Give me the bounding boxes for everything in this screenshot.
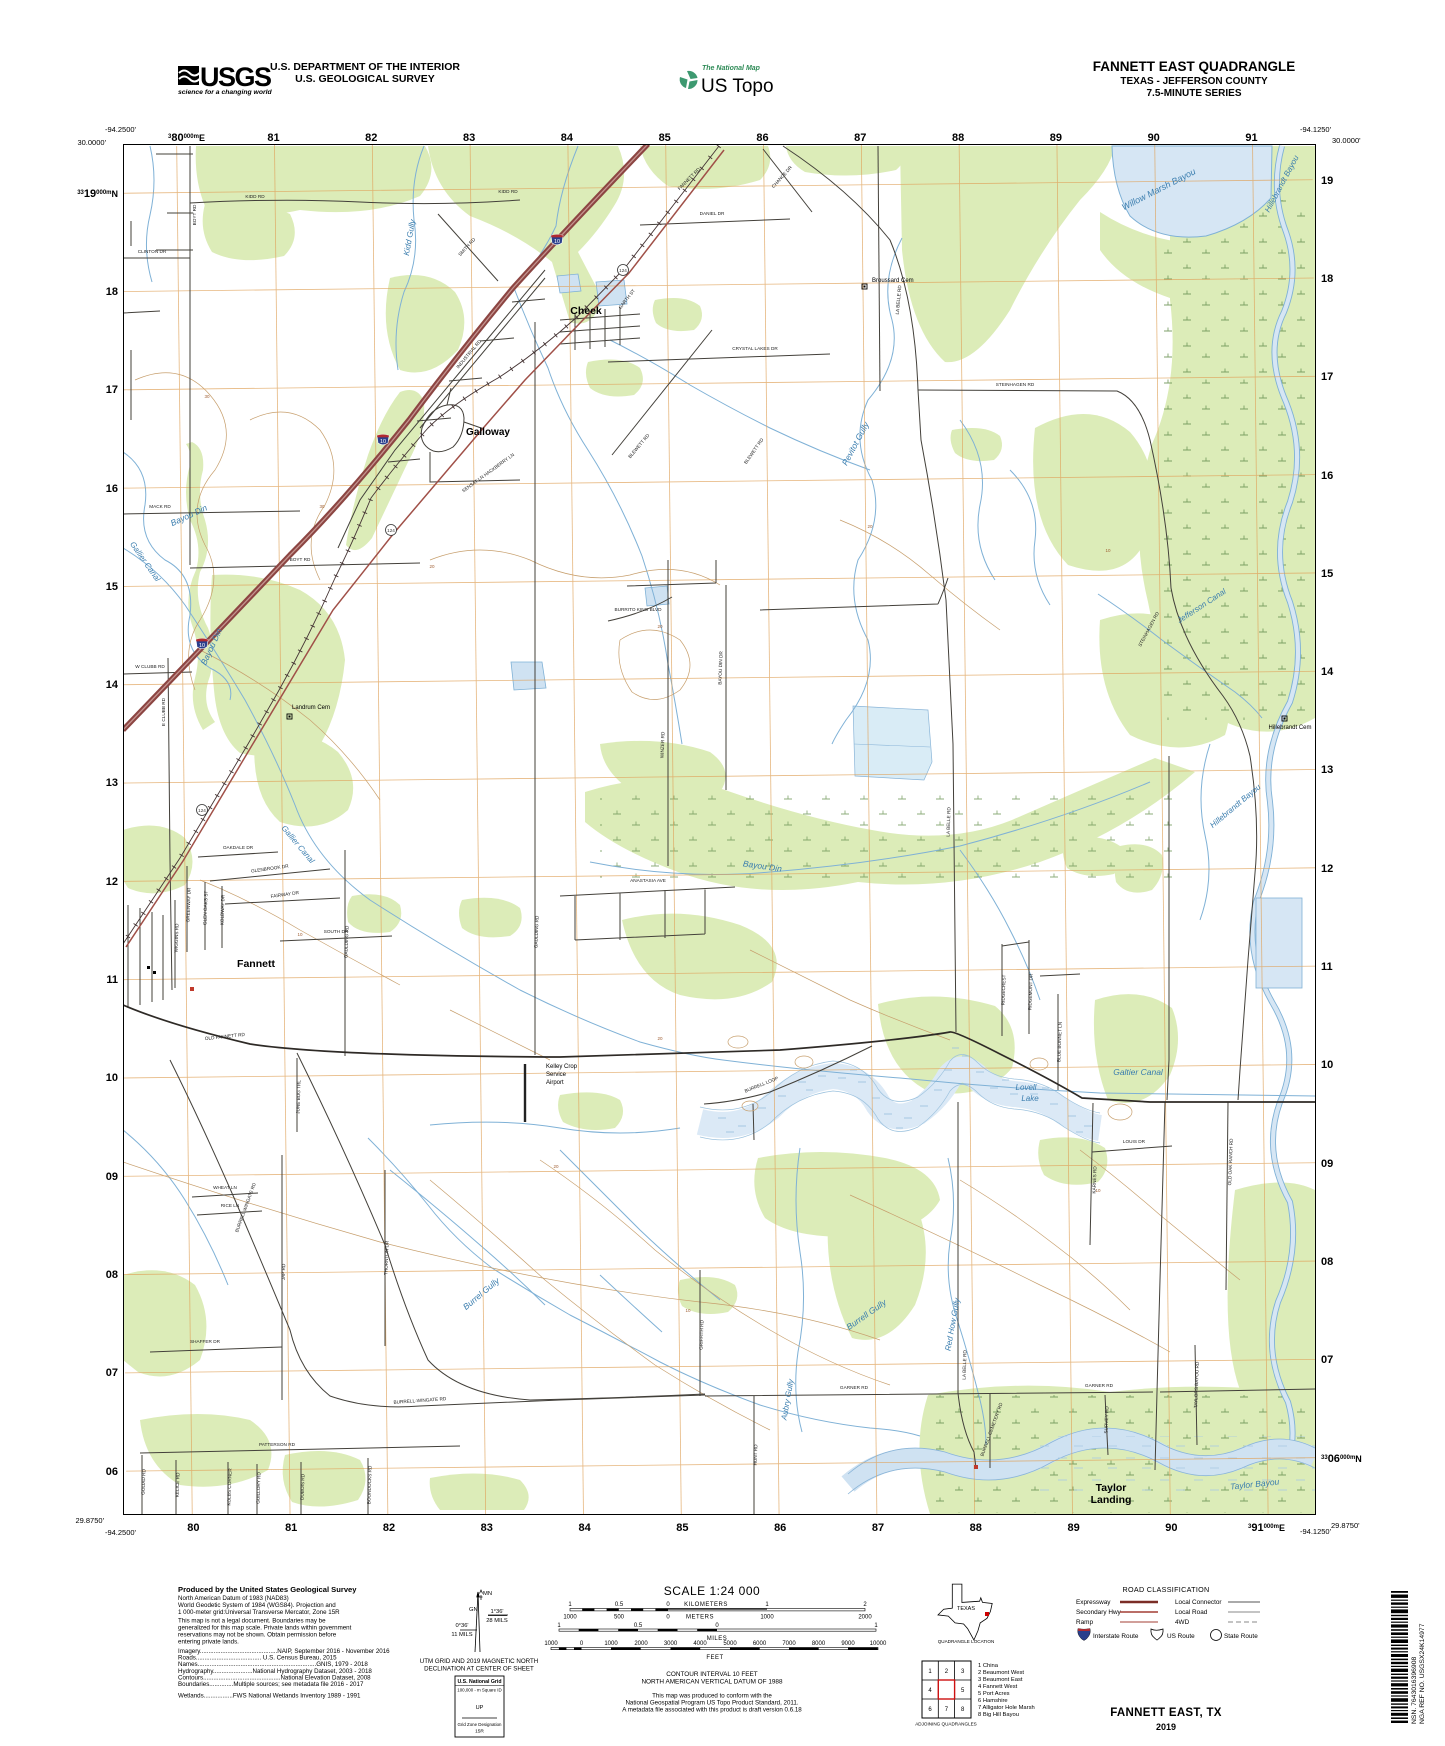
svg-text:-94.2500': -94.2500' xyxy=(105,125,137,134)
svg-text:KELICE RD: KELICE RD xyxy=(175,1472,181,1498)
svg-text:Fannett: Fannett xyxy=(237,958,275,970)
svg-text:1000: 1000 xyxy=(604,1641,618,1647)
svg-text:4000: 4000 xyxy=(693,1641,707,1647)
svg-text:BURRITO KING BLVD: BURRITO KING BLVD xyxy=(615,607,663,612)
svg-text:0: 0 xyxy=(580,1641,584,1647)
svg-text:W CLUBB RD: W CLUBB RD xyxy=(135,664,165,669)
svg-text:CRYSTAL LAKES DR: CRYSTAL LAKES DR xyxy=(732,346,778,351)
svg-text:U.S. National Grid: U.S. National Grid xyxy=(457,1679,501,1685)
svg-text:SOUTH DR: SOUTH DR xyxy=(324,929,349,934)
svg-text:Service: Service xyxy=(546,1072,567,1078)
svg-text:TEXAS - JEFFERSON COUNTY: TEXAS - JEFFERSON COUNTY xyxy=(1120,76,1268,87)
svg-text:LA BELLE RD: LA BELLE RD xyxy=(961,1350,967,1380)
svg-text:2019: 2019 xyxy=(1156,1722,1176,1732)
svg-text:3306000mN: 3306000mN xyxy=(1321,1453,1362,1465)
svg-text:E CLUBB RD: E CLUBB RD xyxy=(161,697,166,726)
svg-text:124: 124 xyxy=(619,268,627,273)
svg-text:11: 11 xyxy=(1321,961,1333,973)
svg-text:6: 6 xyxy=(928,1707,932,1713)
svg-text:WIGGINS RD: WIGGINS RD xyxy=(173,923,179,953)
svg-text:The National Map: The National Map xyxy=(702,65,761,72)
svg-text:3319000mN: 3319000mN xyxy=(77,188,118,200)
svg-text:124: 124 xyxy=(198,808,206,813)
svg-text:88: 88 xyxy=(970,1522,982,1534)
svg-text:10: 10 xyxy=(380,439,386,445)
svg-text:3 Beaumont East: 3 Beaumont East xyxy=(978,1677,1023,1683)
svg-text:15: 15 xyxy=(1321,568,1333,580)
svg-text:LOUIS DR: LOUIS DR xyxy=(1123,1139,1146,1144)
svg-text:5 Port Acres: 5 Port Acres xyxy=(978,1691,1010,1697)
svg-text:81: 81 xyxy=(285,1522,297,1534)
svg-text:11 MILS: 11 MILS xyxy=(451,1632,472,1638)
svg-text:1000: 1000 xyxy=(544,1641,558,1647)
svg-text:Local Road: Local Road xyxy=(1175,1609,1208,1616)
svg-text:MN: MN xyxy=(483,1591,492,1597)
svg-text:124: 124 xyxy=(387,528,395,533)
svg-text:0: 0 xyxy=(715,1623,719,1629)
svg-text:Broussard Cem: Broussard Cem xyxy=(872,278,914,284)
svg-text:17: 17 xyxy=(1321,371,1333,383)
svg-text:20: 20 xyxy=(657,624,663,629)
svg-text:7 Alligator Hole Marsh: 7 Alligator Hole Marsh xyxy=(978,1705,1035,1711)
svg-text:BOYT RD: BOYT RD xyxy=(192,204,197,225)
svg-text:84: 84 xyxy=(561,132,574,144)
svg-text:391000mE: 391000mE xyxy=(1248,1522,1285,1534)
svg-text:entering private lands.: entering private lands. xyxy=(178,1639,239,1646)
svg-text:81: 81 xyxy=(267,132,279,144)
svg-text:North American Datum of 1983 (: North American Datum of 1983 (NAD83) xyxy=(178,1595,289,1602)
svg-text:85: 85 xyxy=(676,1522,688,1534)
svg-text:Landing: Landing xyxy=(1091,1494,1132,1506)
svg-text:GN: GN xyxy=(469,1607,478,1613)
svg-text:88: 88 xyxy=(952,132,964,144)
svg-text:HUNT RD: HUNT RD xyxy=(753,1444,759,1466)
svg-text:10: 10 xyxy=(1095,1188,1101,1193)
svg-text:Lovell: Lovell xyxy=(1016,1083,1037,1092)
svg-text:18: 18 xyxy=(1321,273,1333,285)
svg-text:OAKDALE DR: OAKDALE DR xyxy=(223,845,254,850)
svg-text:06: 06 xyxy=(106,1466,118,1478)
svg-text:29.8750': 29.8750' xyxy=(75,1516,104,1525)
svg-text:UP: UP xyxy=(476,1705,484,1711)
svg-text:86: 86 xyxy=(756,132,768,144)
svg-text:KILOMETERS: KILOMETERS xyxy=(684,1602,728,1608)
svg-text:CONTOUR INTERVAL 10 FEET: CONTOUR INTERVAL 10 FEET xyxy=(666,1671,757,1678)
svg-text:4WD: 4WD xyxy=(1175,1619,1190,1626)
svg-text:Grid Zone Designation: Grid Zone Designation xyxy=(458,1722,502,1727)
svg-text:12: 12 xyxy=(106,876,118,888)
svg-text:-94.1250': -94.1250' xyxy=(1300,1527,1332,1536)
svg-text:US Route: US Route xyxy=(1167,1633,1195,1640)
svg-text:2: 2 xyxy=(945,1669,949,1675)
svg-text:10: 10 xyxy=(106,1072,118,1084)
svg-text:GRIFFITH RD: GRIFFITH RD xyxy=(698,1319,704,1349)
svg-text:LA BELLE RD: LA BELLE RD xyxy=(945,807,951,837)
svg-text:DECLINATION AT CENTER OF SHEET: DECLINATION AT CENTER OF SHEET xyxy=(424,1666,534,1673)
svg-text:WHEAT LN: WHEAT LN xyxy=(213,1185,237,1190)
svg-text:Local Connector: Local Connector xyxy=(1175,1599,1222,1606)
svg-text:83: 83 xyxy=(463,132,475,144)
svg-text:11: 11 xyxy=(106,974,118,986)
svg-text:Hillebrandt Cem: Hillebrandt Cem xyxy=(1268,725,1311,731)
svg-text:08: 08 xyxy=(106,1269,118,1281)
svg-text:10000: 10000 xyxy=(870,1641,887,1647)
svg-text:This map was produced to confo: This map was produced to conform with th… xyxy=(652,1693,772,1700)
svg-text:07: 07 xyxy=(106,1367,118,1379)
svg-text:5000: 5000 xyxy=(723,1641,737,1647)
svg-text:10: 10 xyxy=(1105,548,1111,553)
svg-text:A metadata file associated wit: A metadata file associated with this pro… xyxy=(622,1707,802,1714)
svg-text:380000mE: 380000mE xyxy=(168,132,205,144)
svg-text:0: 0 xyxy=(666,1615,670,1621)
svg-text:GARNER RD: GARNER RD xyxy=(840,1385,869,1390)
svg-text:ANASTASIA AVE: ANASTASIA AVE xyxy=(630,878,666,883)
svg-text:19: 19 xyxy=(1321,175,1333,187)
svg-text:20: 20 xyxy=(867,524,873,529)
svg-text:6000: 6000 xyxy=(753,1641,767,1647)
svg-text:GARNER RD: GARNER RD xyxy=(1085,1383,1114,1388)
svg-text:7000: 7000 xyxy=(782,1641,796,1647)
svg-text:87: 87 xyxy=(872,1522,884,1534)
svg-text:08: 08 xyxy=(1321,1256,1333,1268)
svg-text:2 Beaumont West: 2 Beaumont West xyxy=(978,1670,1024,1676)
svg-text:World Geodetic System of 1984: World Geodetic System of 1984 (WGS84). P… xyxy=(178,1602,336,1609)
svg-text:86: 86 xyxy=(774,1522,786,1534)
svg-text:83: 83 xyxy=(481,1522,493,1534)
svg-text:0: 0 xyxy=(666,1602,670,1608)
svg-text:1: 1 xyxy=(557,1623,561,1629)
svg-text:85: 85 xyxy=(659,132,671,144)
svg-text:Boundaries..............Multip: Boundaries..............Multiple sources… xyxy=(178,1681,364,1688)
svg-text:10: 10 xyxy=(297,932,303,937)
svg-text:7.5-MINUTE SERIES: 7.5-MINUTE SERIES xyxy=(1146,88,1241,99)
svg-text:KIDD RD: KIDD RD xyxy=(245,194,265,199)
svg-text:16: 16 xyxy=(106,483,118,495)
svg-text:SCALE 1:24 000: SCALE 1:24 000 xyxy=(664,1584,760,1598)
svg-text:TEXAS: TEXAS xyxy=(957,1606,975,1612)
svg-text:1000: 1000 xyxy=(563,1615,577,1621)
svg-text:WINZER RD: WINZER RD xyxy=(660,731,666,758)
svg-text:15: 15 xyxy=(106,581,118,593)
svg-text:SURVEY RD: SURVEY RD xyxy=(1104,1406,1110,1434)
svg-text:89: 89 xyxy=(1050,132,1062,144)
svg-text:07: 07 xyxy=(1321,1354,1333,1366)
svg-text:DUBOIS RD: DUBOIS RD xyxy=(300,1473,306,1500)
svg-text:reservations may not be shown.: reservations may not be shown. Obtain pe… xyxy=(178,1632,337,1639)
svg-text:8: 8 xyxy=(961,1707,965,1713)
svg-text:MACK RD: MACK RD xyxy=(149,504,171,509)
svg-text:13: 13 xyxy=(1321,764,1333,776)
svg-text:US Topo: US Topo xyxy=(701,76,774,97)
svg-text:KIDD RD: KIDD RD xyxy=(498,189,518,194)
svg-text:CLINTON DR: CLINTON DR xyxy=(138,249,167,254)
svg-text:ROAD CLASSIFICATION: ROAD CLASSIFICATION xyxy=(1122,1585,1209,1594)
svg-text:1 000-meter grid:Universal Tra: 1 000-meter grid:Universal Transverse Me… xyxy=(178,1609,340,1616)
svg-text:QUADRANGLE LOCATION: QUADRANGLE LOCATION xyxy=(938,1639,995,1644)
svg-text:JAP RD: JAP RD xyxy=(281,1263,287,1280)
svg-text:1: 1 xyxy=(928,1669,932,1675)
svg-text:UTM GRID AND 2019 MAGNETIC NOR: UTM GRID AND 2019 MAGNETIC NORTH xyxy=(420,1658,539,1665)
svg-text:82: 82 xyxy=(383,1522,395,1534)
svg-text:82: 82 xyxy=(365,132,377,144)
svg-text:Secondary Hwy: Secondary Hwy xyxy=(1076,1609,1122,1616)
svg-text:91: 91 xyxy=(1245,132,1257,144)
svg-text:This map is not a legal docume: This map is not a legal document. Bounda… xyxy=(178,1618,326,1625)
svg-text:28 MILS: 28 MILS xyxy=(486,1618,508,1624)
svg-text:METERS: METERS xyxy=(686,1615,714,1621)
svg-text:30: 30 xyxy=(204,394,210,399)
svg-text:Galloway: Galloway xyxy=(466,427,510,438)
svg-text:14: 14 xyxy=(1321,666,1334,678)
svg-text:Lake: Lake xyxy=(1021,1094,1039,1103)
svg-text:1 China: 1 China xyxy=(978,1663,999,1669)
svg-text:generalized for this map scale: generalized for this map scale. Private … xyxy=(178,1625,352,1632)
svg-text:Landrum Cem: Landrum Cem xyxy=(292,705,330,711)
svg-text:8000: 8000 xyxy=(812,1641,826,1647)
svg-text:4: 4 xyxy=(928,1688,932,1694)
svg-text:1000: 1000 xyxy=(760,1615,774,1621)
svg-text:8 Big Hill Bayou: 8 Big Hill Bayou xyxy=(978,1712,1019,1718)
svg-text:5: 5 xyxy=(961,1688,965,1694)
svg-text:09: 09 xyxy=(1321,1158,1333,1170)
svg-text:1: 1 xyxy=(568,1602,572,1608)
svg-text:Ramp: Ramp xyxy=(1076,1619,1093,1626)
svg-text:10: 10 xyxy=(685,1308,691,1313)
svg-text:87: 87 xyxy=(854,132,866,144)
svg-text:80: 80 xyxy=(187,1522,199,1534)
svg-text:Cheek: Cheek xyxy=(570,305,602,317)
svg-text:FANNETT EAST, TX: FANNETT EAST, TX xyxy=(1110,1707,1222,1719)
svg-text:10: 10 xyxy=(1321,1059,1333,1071)
svg-text:BOYT RD: BOYT RD xyxy=(290,557,311,562)
svg-text:4 Fannett West: 4 Fannett West xyxy=(978,1684,1018,1690)
svg-text:29.8750': 29.8750' xyxy=(1331,1521,1360,1530)
svg-text:U.S. DEPARTMENT OF THE INTERIO: U.S. DEPARTMENT OF THE INTERIOR xyxy=(270,61,460,73)
svg-text:1: 1 xyxy=(874,1623,878,1629)
svg-text:NORTH AMERICAN VERTICAL DATUM: NORTH AMERICAN VERTICAL DATUM OF 1988 xyxy=(641,1679,783,1686)
svg-text:14: 14 xyxy=(106,679,119,691)
svg-text:30: 30 xyxy=(319,504,325,509)
svg-text:State Route: State Route xyxy=(1224,1633,1258,1640)
svg-text:0.5: 0.5 xyxy=(634,1623,643,1629)
svg-text:12: 12 xyxy=(1321,863,1333,875)
svg-text:0°36': 0°36' xyxy=(455,1623,468,1629)
svg-text:2000: 2000 xyxy=(858,1615,872,1621)
svg-text:2000: 2000 xyxy=(634,1641,648,1647)
svg-text:FEET: FEET xyxy=(706,1655,723,1661)
svg-text:20: 20 xyxy=(429,564,435,569)
svg-text:500: 500 xyxy=(614,1615,625,1621)
svg-text:7: 7 xyxy=(945,1707,949,1713)
svg-text:90: 90 xyxy=(1148,132,1160,144)
svg-text:100,000 - m Square ID: 100,000 - m Square ID xyxy=(457,1688,501,1693)
svg-text:89: 89 xyxy=(1067,1522,1079,1534)
svg-text:17: 17 xyxy=(106,384,118,396)
svg-text:Galtier Canal: Galtier Canal xyxy=(1113,1067,1164,1077)
svg-text:Expressway: Expressway xyxy=(1076,1599,1111,1606)
svg-text:NGA REF NO. USGSX24K14977: NGA REF NO. USGSX24K14977 xyxy=(1419,1623,1426,1724)
svg-text:USGS: USGS xyxy=(200,62,271,92)
svg-text:20: 20 xyxy=(553,1164,559,1169)
svg-text:13: 13 xyxy=(106,777,118,789)
svg-text:-94.2500': -94.2500' xyxy=(105,1528,137,1537)
svg-text:9000: 9000 xyxy=(841,1641,855,1647)
svg-text:84: 84 xyxy=(578,1522,591,1534)
svg-text:1°36': 1°36' xyxy=(490,1609,503,1615)
svg-text:-94.1250': -94.1250' xyxy=(1300,125,1332,134)
svg-text:10: 10 xyxy=(554,239,560,245)
svg-text:Taylor: Taylor xyxy=(1096,1482,1127,1494)
svg-text:Kelley Crop: Kelley Crop xyxy=(546,1064,578,1070)
svg-text:20: 20 xyxy=(657,1036,663,1041)
svg-text:18: 18 xyxy=(106,286,118,298)
svg-text:RICE LN: RICE LN xyxy=(221,1203,240,1208)
svg-text:U.S. GEOLOGICAL SURVEY: U.S. GEOLOGICAL SURVEY xyxy=(295,73,435,85)
svg-text:PATTERSON RD: PATTERSON RD xyxy=(259,1442,296,1447)
svg-text:ADJOINING QUADRANGLES: ADJOINING QUADRANGLES xyxy=(915,1722,977,1727)
svg-text:09: 09 xyxy=(106,1171,118,1183)
svg-text:SHAFFER DR: SHAFFER DR xyxy=(190,1339,221,1344)
svg-text:1: 1 xyxy=(765,1602,769,1608)
svg-text:science for a changing world: science for a changing world xyxy=(178,89,273,96)
svg-text:GOLIAD RD: GOLIAD RD xyxy=(141,1468,147,1495)
svg-text:30.0000': 30.0000' xyxy=(1332,136,1361,145)
svg-text:Airport: Airport xyxy=(546,1080,564,1086)
svg-text:Produced by the United States: Produced by the United States Geological… xyxy=(178,1585,357,1594)
svg-text:NSN. 7643016396908: NSN. 7643016396908 xyxy=(1411,1657,1418,1724)
svg-text:15R: 15R xyxy=(475,1729,484,1735)
svg-text:90: 90 xyxy=(1165,1522,1177,1534)
svg-text:DANIEL DR: DANIEL DR xyxy=(700,211,725,216)
svg-text:FANNETT EAST QUADRANGLE: FANNETT EAST QUADRANGLE xyxy=(1093,59,1296,74)
svg-text:30.0000': 30.0000' xyxy=(77,138,106,147)
svg-text:16: 16 xyxy=(1321,470,1333,482)
svg-text:3: 3 xyxy=(961,1669,965,1675)
svg-text:6 Hamshire: 6 Hamshire xyxy=(978,1698,1008,1704)
svg-text:Wetlands.................FWS: Wetlands.................FWS National We… xyxy=(178,1693,361,1700)
svg-text:Interstate Route: Interstate Route xyxy=(1093,1633,1139,1640)
svg-text:0.5: 0.5 xyxy=(615,1602,624,1608)
svg-text:National Geospatial Program US: National Geospatial Program US Topo Prod… xyxy=(625,1700,798,1707)
svg-text:STEINHAGEN RD: STEINHAGEN RD xyxy=(996,382,1035,387)
svg-text:2: 2 xyxy=(863,1602,867,1608)
svg-text:3000: 3000 xyxy=(664,1641,678,1647)
